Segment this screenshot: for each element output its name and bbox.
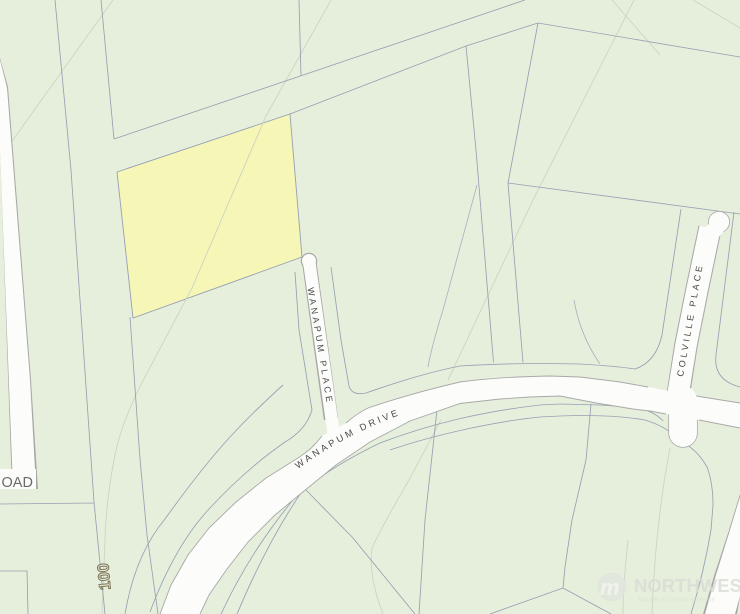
svg-text:NORTHWEST: NORTHWEST [634,575,740,596]
svg-text:OAD: OAD [2,475,33,491]
svg-text:MULTIPLE LISTING SERVICE: MULTIPLE LISTING SERVICE [638,598,715,604]
svg-text:100: 100 [95,562,114,590]
svg-text:m: m [600,575,620,600]
